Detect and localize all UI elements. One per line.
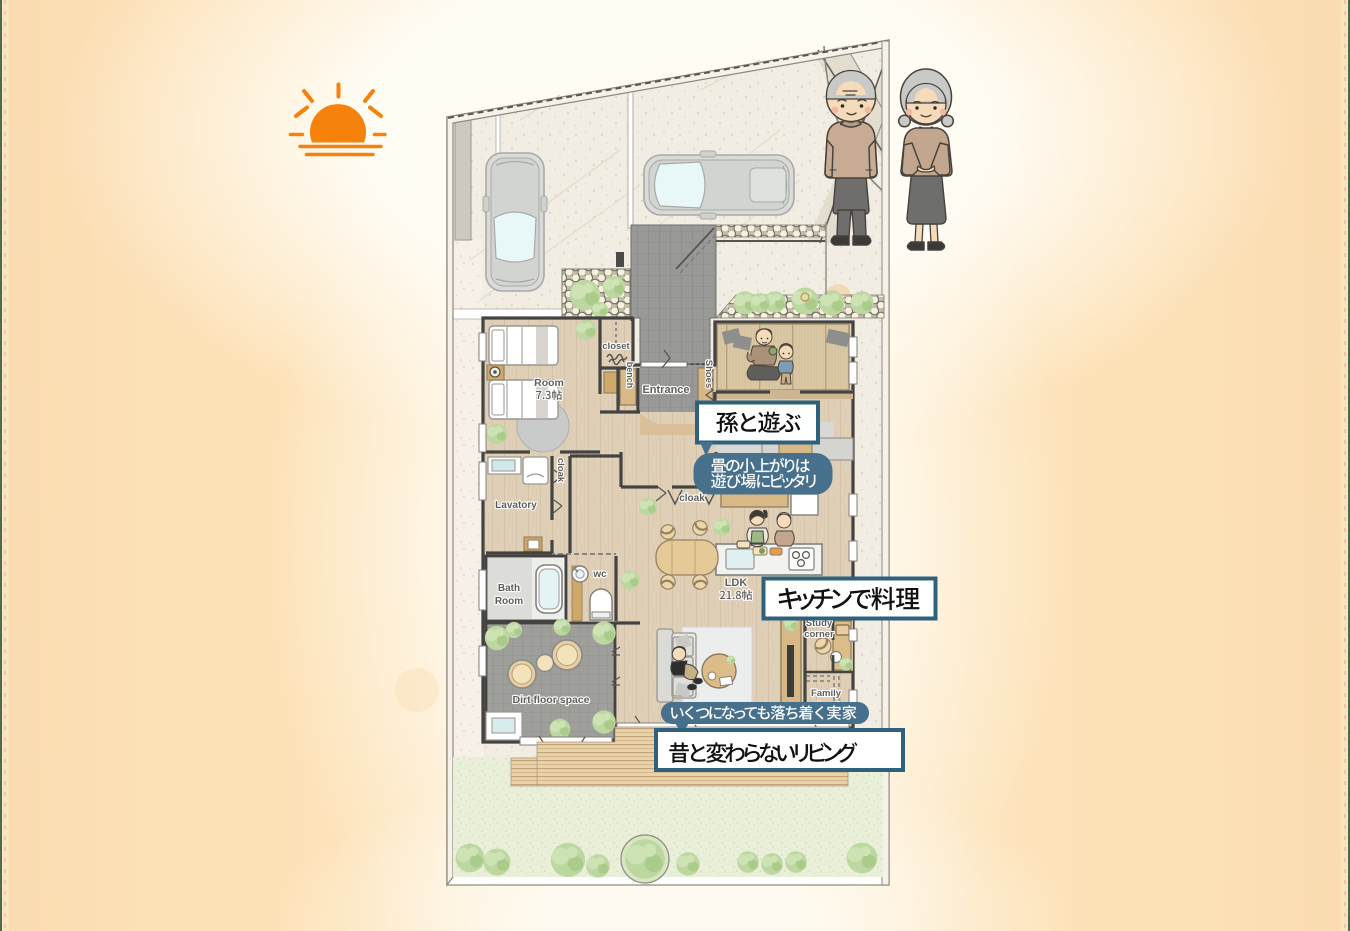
svg-text:cloak: cloak	[679, 493, 705, 504]
svg-text:Shoes: Shoes	[703, 360, 714, 389]
svg-text:Lavatory: Lavatory	[495, 500, 537, 511]
svg-text:Bath: Bath	[498, 583, 520, 594]
svg-text:Room: Room	[534, 377, 564, 389]
svg-text:closet: closet	[602, 341, 630, 352]
svg-text:cloak: cloak	[555, 458, 566, 483]
svg-text:bench: bench	[625, 362, 635, 389]
svg-text:Room: Room	[495, 596, 523, 607]
svg-text:Dirt floor space: Dirt floor space	[512, 694, 589, 706]
svg-text:Entrance: Entrance	[642, 384, 689, 396]
svg-text:Family: Family	[811, 688, 842, 699]
svg-text:wc: wc	[592, 569, 607, 580]
svg-text:LDK: LDK	[725, 577, 748, 589]
svg-text:corner: corner	[804, 629, 834, 640]
